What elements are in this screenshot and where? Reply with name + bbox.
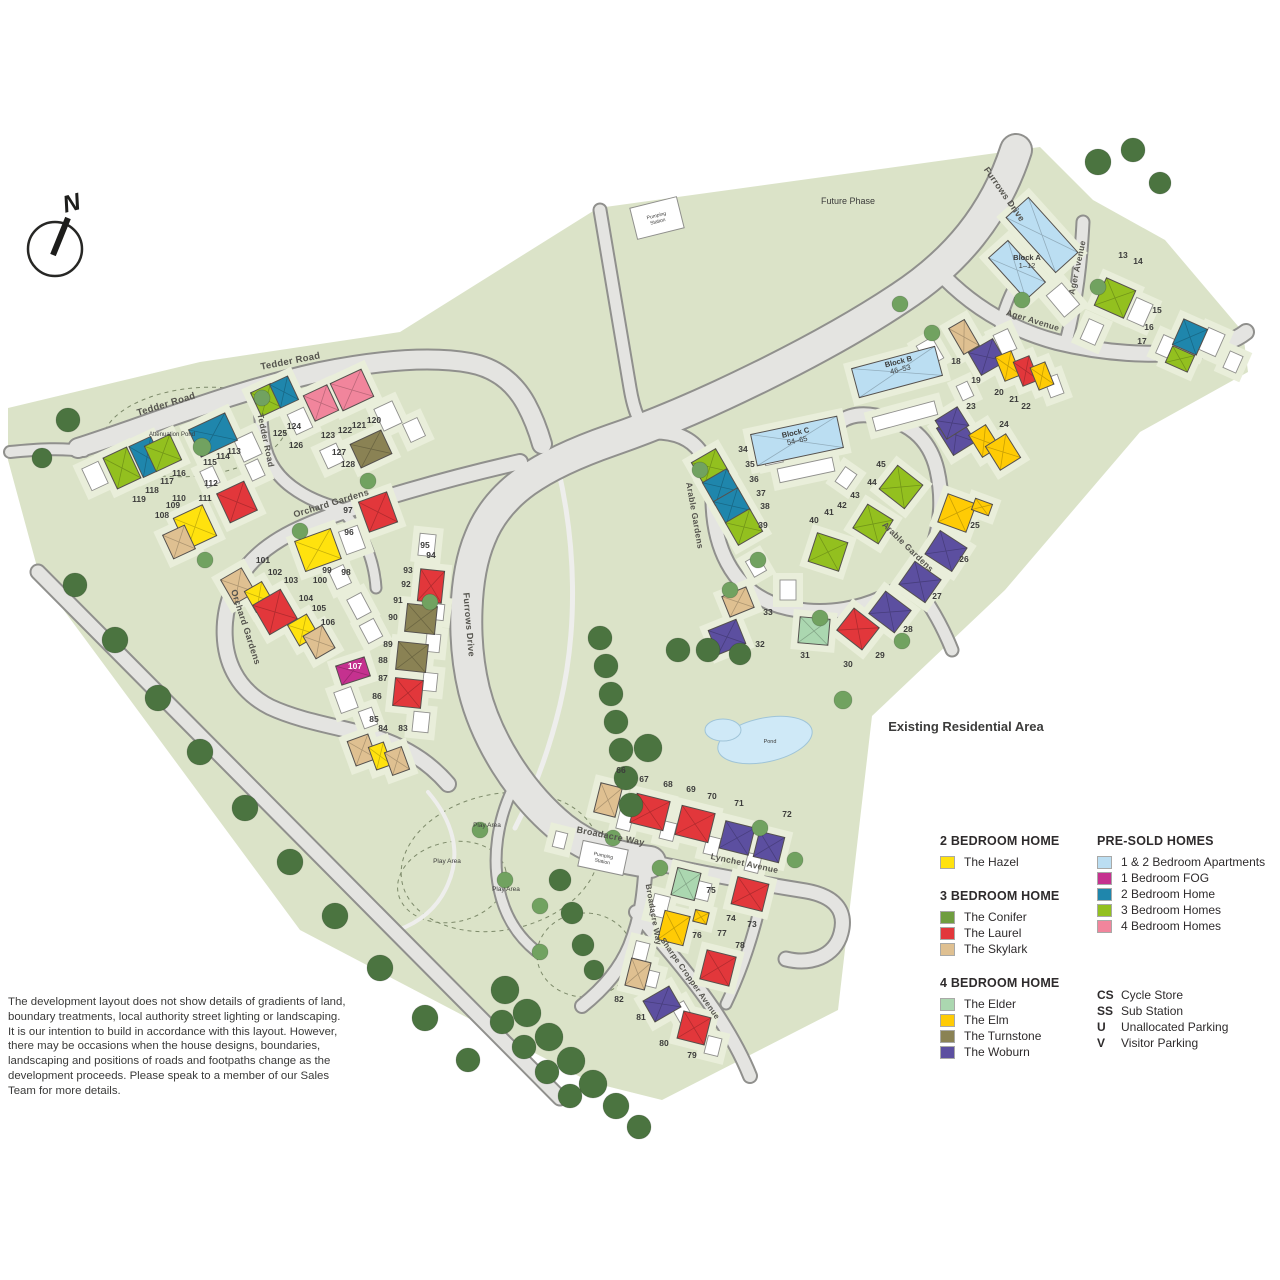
plot-number: 82 [614, 994, 624, 1004]
tree [834, 691, 852, 709]
plot-number: 39 [758, 520, 768, 530]
tree [535, 1023, 563, 1051]
plot-number: 79 [687, 1050, 697, 1060]
plot-number: 78 [735, 940, 745, 950]
tree [572, 934, 594, 956]
legend-item-label: The Hazel [964, 855, 1019, 869]
legend-abbrev: U Unallocated Parking [1097, 1019, 1280, 1035]
tree [535, 1060, 559, 1084]
plot-number: 105 [312, 603, 326, 613]
legend-item: 1 & 2 Bedroom Apartments [1097, 854, 1280, 870]
legend-item: The Conifer [940, 909, 1105, 925]
plot-number: 26 [959, 554, 969, 564]
legend-item-label: 3 Bedroom Homes [1121, 903, 1221, 917]
plot-number: 87 [378, 673, 388, 683]
plot-number: 43 [850, 490, 860, 500]
tree [145, 685, 171, 711]
plot-number: 29 [875, 650, 885, 660]
plot-number: 22 [1021, 401, 1031, 411]
abbr-label: Unallocated Parking [1121, 1020, 1228, 1034]
swatch-laurel [940, 927, 955, 940]
plot-number: 66 [616, 765, 626, 775]
plot-number: 122 [338, 425, 352, 435]
plot-number: 84 [378, 723, 388, 733]
plot-number: 28 [903, 624, 913, 634]
legend-item-label: The Elm [964, 1013, 1009, 1027]
legend-section-title: 4 BEDROOM HOME [940, 976, 1105, 990]
plot-number: 81 [636, 1012, 646, 1022]
tree [652, 860, 668, 876]
plot-number: 45 [876, 459, 886, 469]
white-building [422, 672, 438, 691]
tree [609, 738, 633, 762]
tree [696, 638, 720, 662]
plot-number: 115 [203, 457, 217, 467]
plot-number: 20 [994, 387, 1004, 397]
plot-number: 36 [749, 474, 759, 484]
legend-item-label: 1 Bedroom FOG [1121, 871, 1209, 885]
plot-number: 123 [321, 430, 335, 440]
plot-number: 124 [287, 421, 301, 431]
tree [490, 1010, 514, 1034]
tree [32, 448, 52, 468]
legend-item: 2 Bedroom Home [1097, 886, 1280, 902]
plot-number: 91 [393, 595, 403, 605]
tree [729, 643, 751, 665]
plot-number: 30 [843, 659, 853, 669]
tree [532, 944, 548, 960]
tree [232, 795, 258, 821]
plot-number: 118 [145, 485, 159, 495]
abbr-label: Visitor Parking [1121, 1036, 1198, 1050]
plot-number: 31 [800, 650, 810, 660]
plot-number: 114 [216, 451, 230, 461]
tree [599, 682, 623, 706]
tree [627, 1115, 651, 1139]
plot-number: 77 [717, 928, 727, 938]
swatch-apartments [1097, 856, 1112, 869]
plot-number: 111 [198, 493, 212, 503]
plot-number: 23 [966, 401, 976, 411]
swatch-4bed [1097, 920, 1112, 933]
plot-number: 112 [204, 478, 218, 488]
plot-number: 42 [837, 500, 847, 510]
plot-number: 128 [341, 459, 355, 469]
tree [894, 633, 910, 649]
plot-number: 99 [322, 565, 332, 575]
area-label: Attenuation Pond [149, 432, 195, 438]
tree [102, 627, 128, 653]
plot-number: 126 [289, 440, 303, 450]
plot-number: 90 [388, 612, 398, 622]
tree [56, 408, 80, 432]
plot-number: 98 [341, 567, 351, 577]
tree [666, 638, 690, 662]
plot-number: 75 [706, 885, 716, 895]
plot-number: 96 [344, 527, 354, 537]
plot-number: 92 [401, 579, 411, 589]
legend-section-title: 2 BEDROOM HOME [940, 834, 1105, 848]
swatch-conifer [940, 911, 955, 924]
tree [1121, 138, 1145, 162]
area-label: Play Area [492, 886, 520, 893]
plot-number: 71 [734, 798, 744, 808]
swatch-hazel [940, 856, 955, 869]
plot-number: 93 [403, 565, 413, 575]
tree [619, 793, 643, 817]
swatch-fog [1097, 872, 1112, 885]
tree [752, 820, 768, 836]
plot-number: 67 [639, 774, 649, 784]
legend-house-types: 2 BEDROOM HOME The Hazel 3 BEDROOM HOME … [940, 834, 1105, 1079]
plot-number: 13 [1118, 250, 1128, 260]
plot-number: 34 [738, 444, 748, 454]
legend-item: The Elm [940, 1012, 1105, 1028]
plot-number: 95 [420, 540, 430, 550]
tree [604, 710, 628, 734]
swatch-2bed [1097, 888, 1112, 901]
legend-item-label: The Conifer [964, 910, 1027, 924]
plot-number: 40 [809, 515, 819, 525]
tree [892, 296, 908, 312]
abbr-key: V [1097, 1036, 1121, 1050]
plot-number: 83 [398, 723, 408, 733]
tree [367, 955, 393, 981]
plot-number: 76 [692, 930, 702, 940]
tree [491, 976, 519, 1004]
abbr-key: SS [1097, 1004, 1121, 1018]
plot-number: 69 [686, 784, 696, 794]
tree [422, 594, 438, 610]
plot-number: 107 [348, 661, 362, 671]
tree [722, 582, 738, 598]
plot-number: 74 [726, 913, 736, 923]
swatch-elm [940, 1014, 955, 1027]
tree [634, 734, 662, 762]
plot-number: 101 [256, 555, 270, 565]
legend-item-label: The Turnstone [964, 1029, 1041, 1043]
legend-item: The Turnstone [940, 1028, 1105, 1044]
tree [277, 849, 303, 875]
pond [705, 719, 741, 741]
tree [456, 1048, 480, 1072]
plot-number: 120 [367, 415, 381, 425]
disclaimer-text: The development layout does not show det… [8, 995, 346, 1099]
abbr-key: CS [1097, 988, 1121, 1002]
plot-number: 127 [332, 447, 346, 457]
plot-number: 125 [273, 428, 287, 438]
tree [558, 1084, 582, 1108]
plot-number: 110 [172, 493, 186, 503]
plot-number: 100 [313, 575, 327, 585]
swatch-3bed [1097, 904, 1112, 917]
plot-number: 18 [951, 356, 961, 366]
plot-number: 117 [160, 476, 174, 486]
legend-abbrev: CS Cycle Store [1097, 987, 1280, 1003]
plot-number: 72 [782, 809, 792, 819]
swatch-turnstone [940, 1030, 955, 1043]
tree [557, 1047, 585, 1075]
tree [924, 325, 940, 341]
tree [512, 1035, 536, 1059]
swatch-elder [940, 998, 955, 1011]
legend-item: The Elder [940, 996, 1105, 1012]
tree [532, 898, 548, 914]
tree [197, 552, 213, 568]
legend-section-title: 3 BEDROOM HOME [940, 889, 1105, 903]
tree [588, 626, 612, 650]
plot-number: 88 [378, 655, 388, 665]
area-label: Play Area [433, 858, 461, 865]
tree [254, 390, 270, 406]
tree [561, 902, 583, 924]
tree [1014, 292, 1030, 308]
tree [63, 573, 87, 597]
tree [322, 903, 348, 929]
plot-number: 121 [352, 420, 366, 430]
plot-number: 119 [132, 494, 146, 504]
tree [360, 473, 376, 489]
tree [187, 739, 213, 765]
block-range-label: 1–12 [1019, 261, 1036, 270]
tree [292, 523, 308, 539]
plot-number: 68 [663, 779, 673, 789]
compass-north-label: N [60, 188, 84, 219]
tree [193, 438, 211, 456]
plot-number: 21 [1009, 394, 1019, 404]
legend-item: 1 Bedroom FOG [1097, 870, 1280, 886]
plot-number: 27 [932, 591, 942, 601]
plot-number: 97 [343, 505, 353, 515]
legend-item-label: 2 Bedroom Home [1121, 887, 1215, 901]
plot-number: 44 [867, 477, 877, 487]
plot-number: 108 [155, 510, 169, 520]
plot-number: 103 [284, 575, 298, 585]
tree [603, 1093, 629, 1119]
legend-item-label: The Elder [964, 997, 1016, 1011]
legend-item: The Skylark [940, 941, 1105, 957]
tree [412, 1005, 438, 1031]
plot-number: 33 [763, 607, 773, 617]
legend-presold: PRE-SOLD HOMES 1 & 2 Bedroom Apartments … [1097, 834, 1280, 1051]
tree [750, 552, 766, 568]
abbr-key: U [1097, 1020, 1121, 1034]
plot-number: 116 [172, 468, 186, 478]
area-label: Play Area [473, 822, 501, 829]
plot-number: 25 [970, 520, 980, 530]
plot-number: 41 [824, 507, 834, 517]
tree [1090, 279, 1106, 295]
legend-item: The Woburn [940, 1044, 1105, 1060]
tree [594, 654, 618, 678]
plot-number: 106 [321, 617, 335, 627]
white-building [412, 711, 430, 733]
plot-number: 102 [268, 567, 282, 577]
plot-number: 85 [369, 714, 379, 724]
plot-number: 32 [755, 639, 765, 649]
tree [812, 610, 828, 626]
plot-number: 104 [299, 593, 313, 603]
plot-number: 37 [756, 488, 766, 498]
plot-number: 86 [372, 691, 382, 701]
legend-item: The Hazel [940, 854, 1105, 870]
plot-number: 14 [1133, 256, 1143, 266]
tree [787, 852, 803, 868]
abbr-label: Cycle Store [1121, 988, 1183, 1002]
plot-number: 16 [1144, 322, 1154, 332]
plot-number: 73 [747, 919, 757, 929]
pond-label: Pond [764, 739, 777, 745]
tree [1085, 149, 1111, 175]
tree [513, 999, 541, 1027]
swatch-skylark [940, 943, 955, 956]
legend-item: 3 Bedroom Homes [1097, 902, 1280, 918]
legend-item: 4 Bedroom Homes [1097, 918, 1280, 934]
plot-number: 89 [383, 639, 393, 649]
swatch-woburn [940, 1046, 955, 1059]
area-label: Existing Residential Area [888, 719, 1044, 734]
plot-number: 80 [659, 1038, 669, 1048]
plot-number: 38 [760, 501, 770, 511]
tree [549, 869, 571, 891]
plot-number: 94 [426, 550, 436, 560]
plot-number: 19 [971, 375, 981, 385]
plot-number: 17 [1137, 336, 1147, 346]
tree [584, 960, 604, 980]
legend-item-label: The Laurel [964, 926, 1021, 940]
tree [1149, 172, 1171, 194]
area-label: Future Phase [821, 196, 875, 206]
legend-item-label: 4 Bedroom Homes [1121, 919, 1221, 933]
site-plan-page: PondPumpingStationPumpingStation13141516… [0, 0, 1280, 1280]
plot-number: 35 [745, 459, 755, 469]
legend-item-label: 1 & 2 Bedroom Apartments [1121, 855, 1265, 869]
tree [579, 1070, 607, 1098]
plot-number: 15 [1152, 305, 1162, 315]
legend-abbrev: SS Sub Station [1097, 1003, 1280, 1019]
tree [692, 462, 708, 478]
plot-number: 70 [707, 791, 717, 801]
abbr-label: Sub Station [1121, 1004, 1183, 1018]
plot-number: 24 [999, 419, 1009, 429]
legend-item-label: The Skylark [964, 942, 1027, 956]
white-building [780, 580, 796, 600]
legend-abbrev: V Visitor Parking [1097, 1035, 1280, 1051]
legend-item: The Laurel [940, 925, 1105, 941]
legend-section-title: PRE-SOLD HOMES [1097, 834, 1280, 848]
legend-item-label: The Woburn [964, 1045, 1030, 1059]
